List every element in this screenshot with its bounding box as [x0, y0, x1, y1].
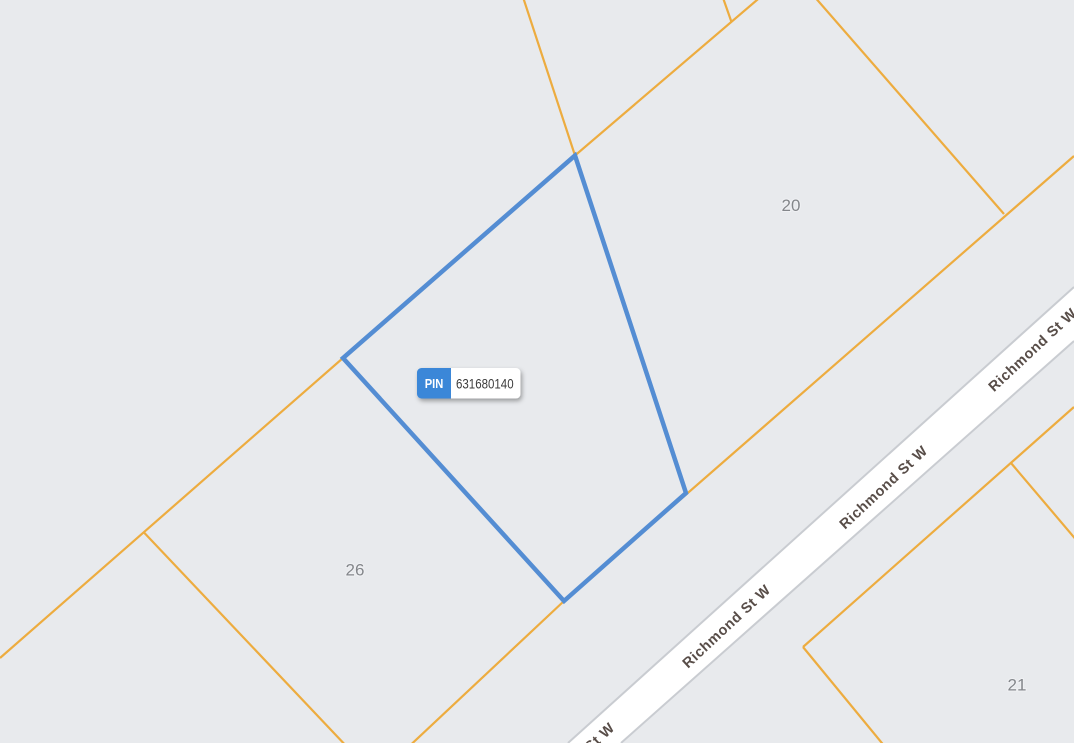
svg-text:PIN: PIN: [425, 377, 444, 391]
svg-text:21: 21: [1008, 676, 1027, 695]
svg-text:20: 20: [782, 196, 801, 215]
svg-text:26: 26: [346, 561, 365, 580]
svg-text:631680140: 631680140: [456, 376, 514, 392]
